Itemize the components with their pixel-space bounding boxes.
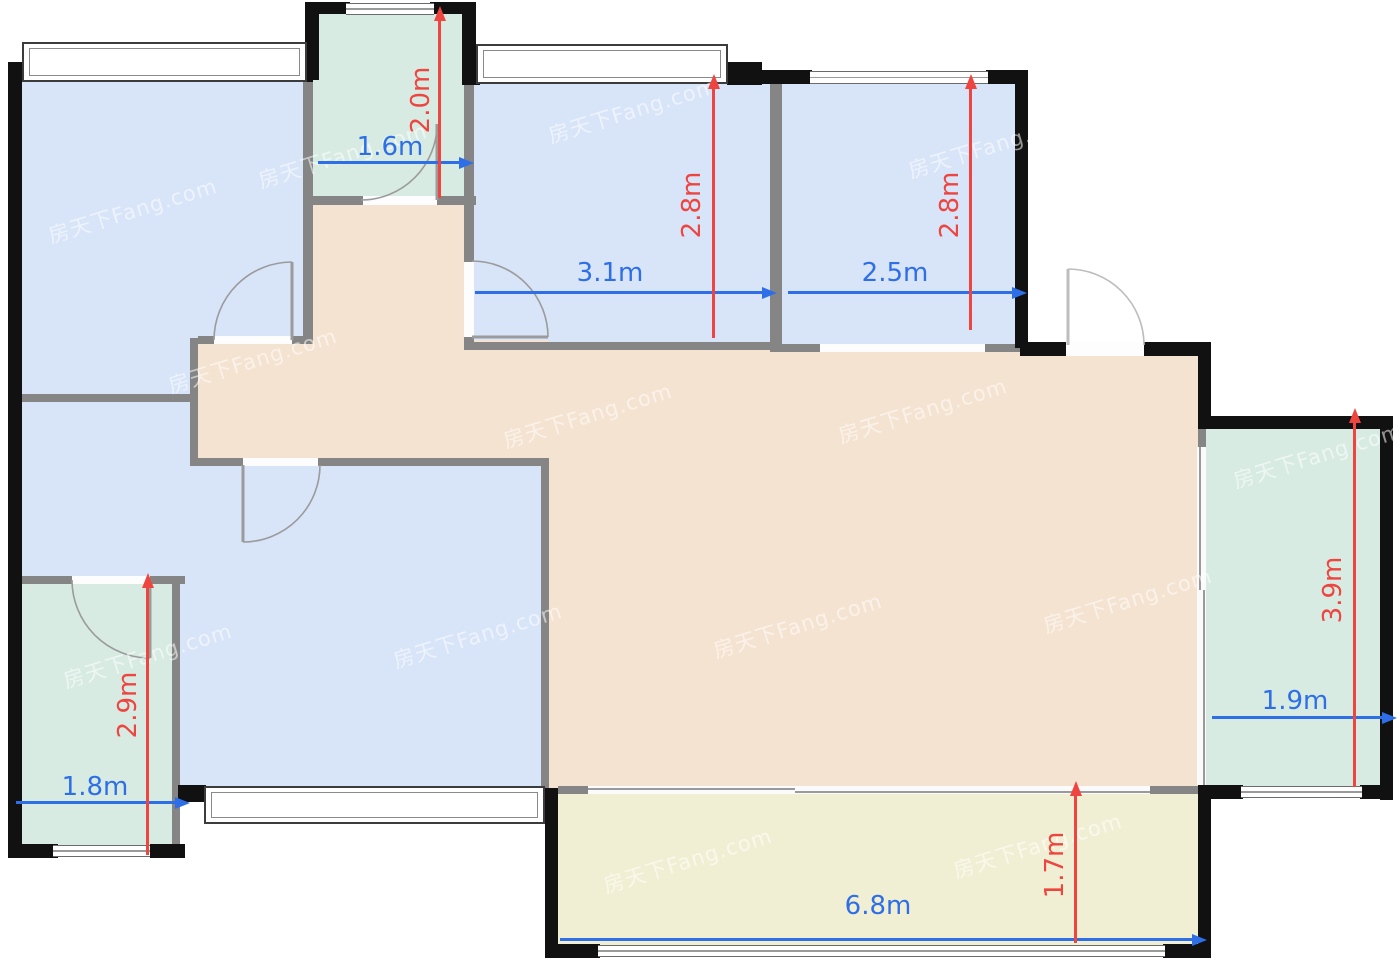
- arrow-head-icon: [1349, 408, 1361, 423]
- arrow-head-icon: [1382, 712, 1397, 724]
- door-bedroom-middle: [472, 261, 548, 337]
- arrow-head-icon: [1192, 934, 1207, 946]
- dim-label-bedroom-middle-width: 3.1m: [550, 258, 670, 288]
- dim-arrow-bathroom-top-height: [438, 20, 441, 198]
- arrow-head-icon: [708, 74, 720, 89]
- door-swings-layer: [0, 0, 1400, 966]
- door-bedroom-top-left: [214, 262, 292, 340]
- dim-arrow-bedroom-middle-height: [712, 88, 715, 338]
- arrow-head-icon: [175, 797, 190, 809]
- arrow-head-icon: [434, 6, 446, 21]
- arrow-head-icon: [459, 157, 474, 169]
- arrow-head-icon: [1012, 287, 1027, 299]
- dim-arrow-balcony-bottom-height: [1074, 795, 1077, 943]
- door-bathroom-bottom-left: [72, 580, 150, 658]
- arrow-head-icon: [1070, 781, 1082, 796]
- dim-label-bedroom-right-height: 2.8m: [935, 155, 965, 255]
- arrow-head-icon: [965, 74, 977, 89]
- dim-arrow-bedroom-right-height: [969, 88, 972, 330]
- dim-label-bathroom-top-height: 2.0m: [406, 50, 436, 150]
- dim-label-bathroom-bl-height: 2.9m: [113, 655, 143, 755]
- dim-arrow-balcony-right-height: [1353, 422, 1356, 787]
- floor-plan: 房天下Fang.com 房天下Fang.com 房天下Fang.com 房天下F…: [0, 0, 1400, 966]
- dim-arrow-balcony-bottom-width: [560, 938, 1193, 941]
- dim-label-bedroom-right-width: 2.5m: [835, 258, 955, 288]
- arrow-head-icon: [762, 287, 777, 299]
- dim-label-balcony-bottom-height: 1.7m: [1040, 815, 1070, 915]
- dim-label-bedroom-middle-height: 2.8m: [677, 155, 707, 255]
- dim-label-balcony-right-height: 3.9m: [1318, 540, 1348, 640]
- dim-arrow-balcony-right-width: [1212, 716, 1383, 719]
- dim-label-balcony-right-width: 1.9m: [1235, 686, 1355, 716]
- arrow-head-icon: [142, 573, 154, 588]
- door-entrance: [1068, 269, 1144, 345]
- dim-arrow-bathroom-bl-height: [146, 587, 149, 855]
- dim-label-bathroom-bl-width: 1.8m: [35, 772, 155, 802]
- door-bedroom-bottom-left: [243, 465, 320, 542]
- dim-arrow-bedroom-right-width: [788, 291, 1013, 294]
- dim-arrow-bedroom-middle-width: [475, 291, 763, 294]
- dim-label-balcony-bottom-width: 6.8m: [818, 891, 938, 921]
